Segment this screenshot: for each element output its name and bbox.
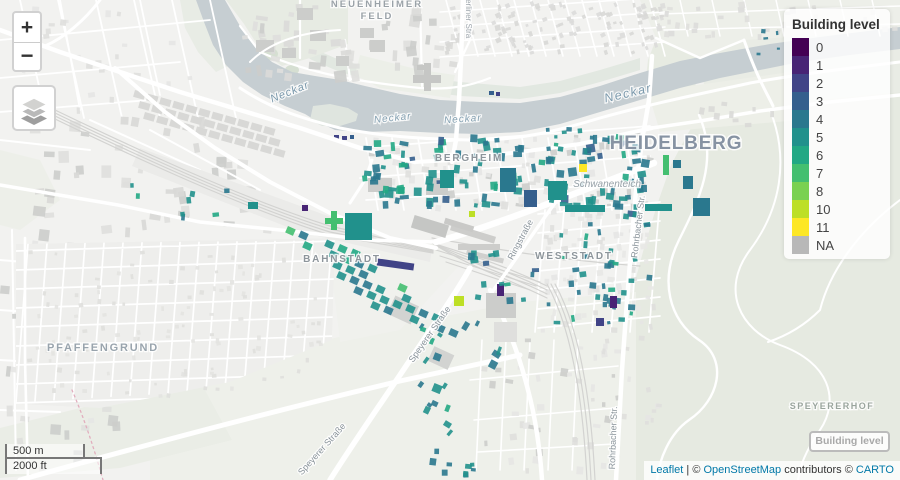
svg-text:Schwanenteich: Schwanenteich [573,179,641,190]
svg-text:BAHNSTADT: BAHNSTADT [303,254,381,265]
svg-text:BERGHEIM: BERGHEIM [435,153,503,164]
svg-text:PFAFFENGRUND: PFAFFENGRUND [47,342,159,354]
svg-text:HEIDELBERG: HEIDELBERG [610,133,743,154]
svg-text:Berliner Stra: Berliner Stra [464,0,473,39]
svg-text:FELD: FELD [361,11,394,22]
svg-text:SPEYERERHOF: SPEYERERHOF [790,401,875,411]
svg-text:NEUENHEIMER: NEUENHEIMER [331,0,423,10]
svg-text:WESTSTADT: WESTSTADT [535,251,613,262]
